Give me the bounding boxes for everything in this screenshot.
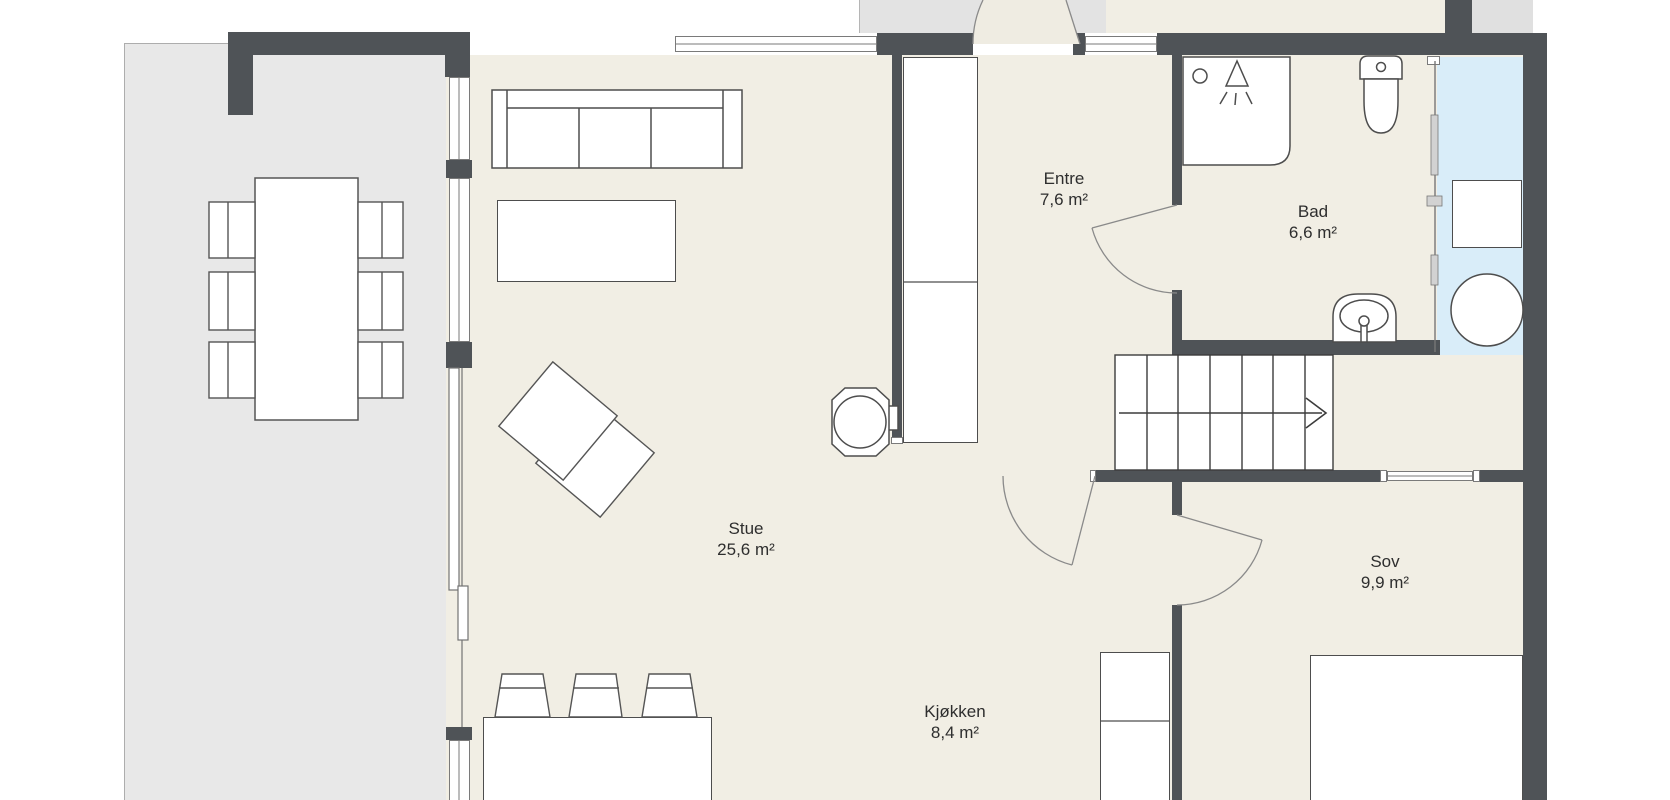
wall-cap bbox=[1090, 470, 1096, 482]
wall bbox=[877, 33, 973, 55]
wall bbox=[228, 32, 253, 115]
window bbox=[449, 178, 470, 342]
wall bbox=[1172, 482, 1182, 515]
window bbox=[1085, 36, 1157, 52]
room-area: 6,6 m² bbox=[1289, 222, 1337, 243]
wall bbox=[892, 55, 902, 443]
room-label-bad: Bad 6,6 m² bbox=[1289, 201, 1337, 243]
terrace-floor bbox=[124, 43, 448, 800]
washing-machine-icon bbox=[1452, 180, 1522, 248]
floor-plan-canvas: Stue 25,6 m² Entre 7,6 m² Bad 6,6 m² Sov… bbox=[0, 0, 1670, 800]
room-label-stue: Stue 25,6 m² bbox=[717, 518, 775, 560]
wall bbox=[1445, 0, 1472, 33]
room-name: Bad bbox=[1289, 201, 1337, 222]
room-area: 9,9 m² bbox=[1361, 572, 1409, 593]
exterior-block bbox=[1472, 0, 1533, 33]
room-label-kjokken: Kjøkken 8,4 m² bbox=[924, 701, 985, 743]
fridge-cabinet-icon bbox=[1100, 652, 1170, 800]
room-label-entre: Entre 7,6 m² bbox=[1040, 168, 1088, 210]
room-name: Entre bbox=[1040, 168, 1088, 189]
wall bbox=[1172, 55, 1182, 205]
coffee-table-icon bbox=[497, 200, 676, 282]
wall bbox=[1095, 470, 1380, 482]
room-area: 7,6 m² bbox=[1040, 189, 1088, 210]
wall bbox=[1172, 605, 1182, 800]
wall-cap bbox=[1427, 56, 1440, 65]
room-name: Kjøkken bbox=[924, 701, 985, 722]
room-area: 25,6 m² bbox=[717, 539, 775, 560]
window bbox=[449, 77, 470, 160]
wall bbox=[446, 342, 472, 368]
wall bbox=[445, 33, 470, 77]
tall-cabinet-icon bbox=[903, 57, 978, 443]
wall bbox=[1073, 33, 1085, 55]
wall bbox=[1523, 33, 1547, 800]
entrance-porch bbox=[859, 0, 1106, 33]
window bbox=[1387, 471, 1473, 481]
wall-cap bbox=[1473, 470, 1480, 482]
window bbox=[449, 740, 470, 800]
wall bbox=[446, 727, 472, 740]
upper-floor-strip bbox=[1105, 0, 1445, 33]
bed-icon bbox=[1310, 655, 1523, 800]
wall-cap bbox=[891, 437, 903, 444]
room-name: Stue bbox=[717, 518, 775, 539]
wall bbox=[228, 32, 470, 55]
wall bbox=[446, 160, 472, 178]
wall bbox=[1157, 33, 1547, 55]
wall bbox=[1172, 340, 1440, 355]
kitchen-island-icon bbox=[483, 717, 712, 800]
room-label-sov: Sov 9,9 m² bbox=[1361, 551, 1409, 593]
room-name: Sov bbox=[1361, 551, 1409, 572]
room-area: 8,4 m² bbox=[924, 722, 985, 743]
wall bbox=[1480, 470, 1523, 482]
wall-cap bbox=[1380, 470, 1387, 482]
window bbox=[675, 36, 877, 52]
